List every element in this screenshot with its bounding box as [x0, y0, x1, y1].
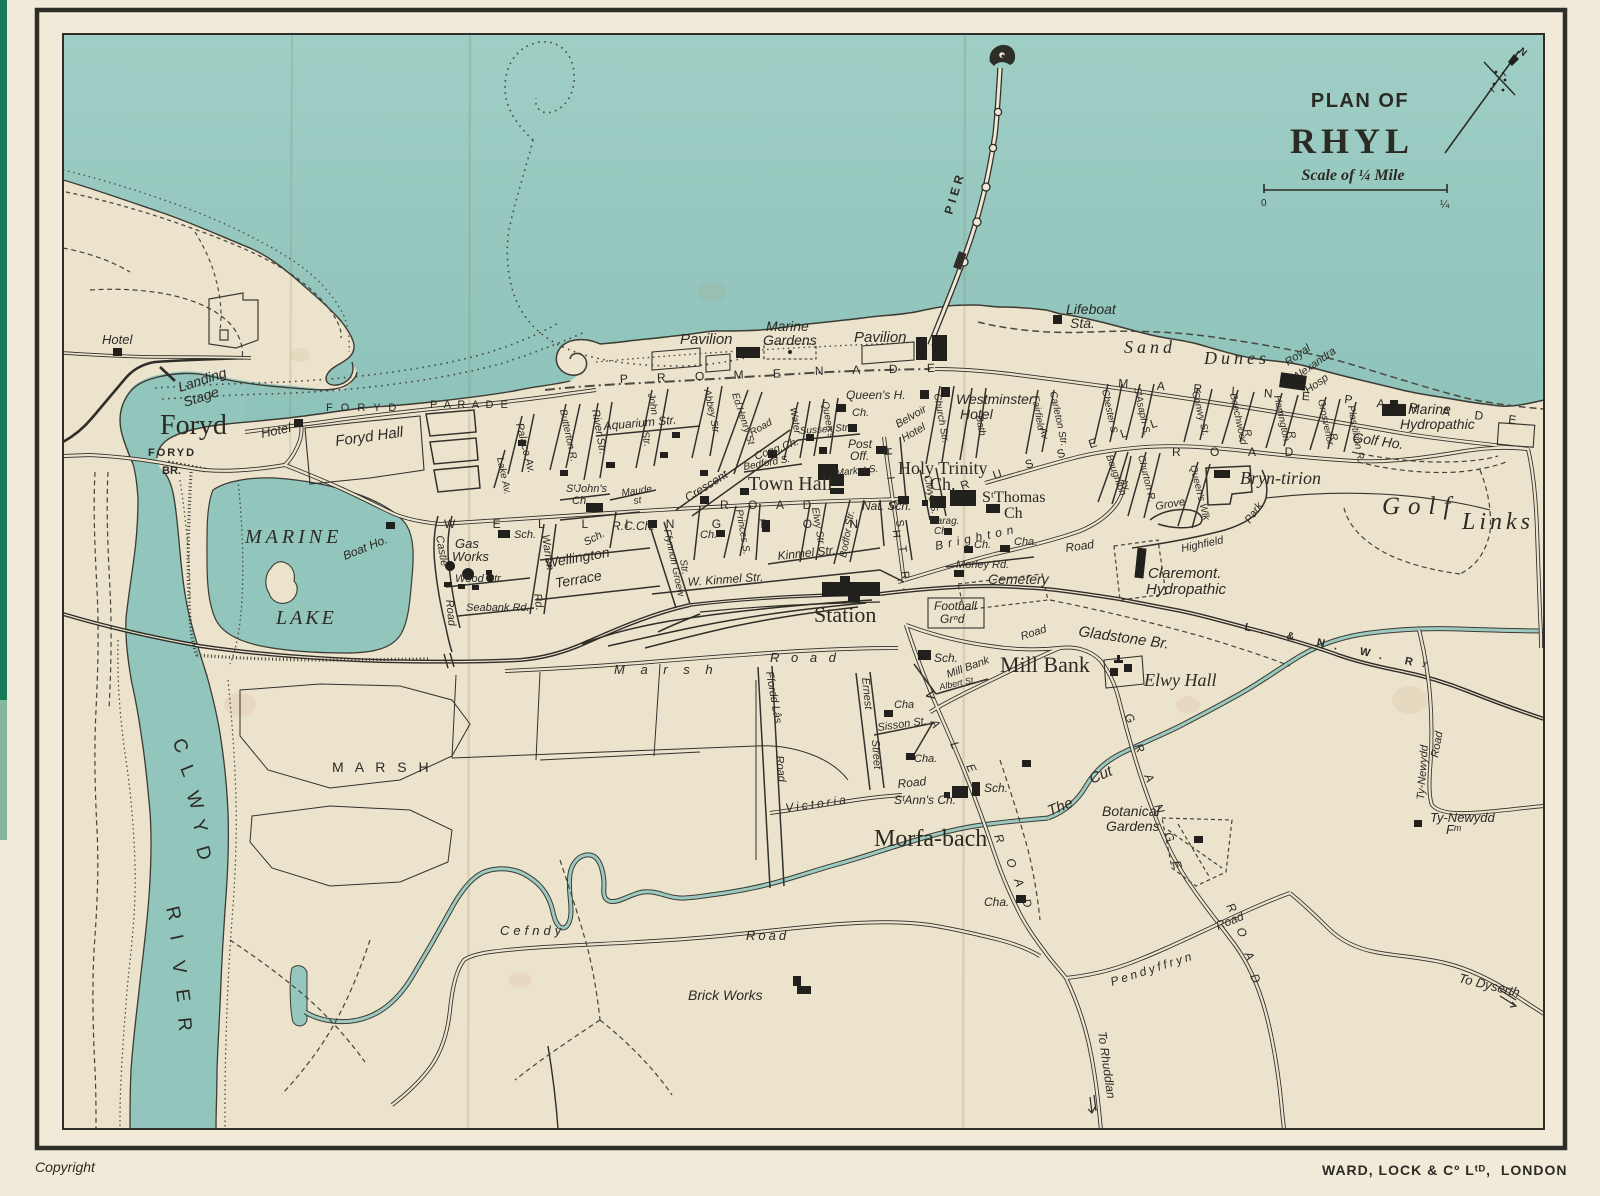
svg-text:Seabank Rd.: Seabank Rd. [466, 602, 530, 614]
svg-text:¼: ¼ [1440, 199, 1450, 211]
svg-text:Town Hall: Town Hall [748, 473, 833, 495]
svg-text:Football: Football [934, 599, 977, 613]
svg-text:R: R [173, 1016, 195, 1032]
svg-text:Westminster: Westminster [956, 391, 1035, 407]
svg-text:Scale of ¼ Mile: Scale of ¼ Mile [1301, 167, 1404, 184]
svg-text:Off.: Off. [850, 449, 869, 463]
svg-text:Marine: Marine [1408, 401, 1451, 417]
svg-text:Pavilion: Pavilion [680, 331, 733, 348]
svg-text:M a r s h: M a r s h [614, 662, 719, 677]
svg-text:Pavilion: Pavilion [854, 329, 907, 346]
svg-text:BR.: BR. [162, 465, 181, 477]
svg-text:0: 0 [1261, 198, 1267, 209]
svg-text:Gardens: Gardens [763, 332, 817, 348]
svg-text:Morley Rd.: Morley Rd. [956, 559, 1009, 571]
svg-text:R o a d: R o a d [770, 650, 840, 665]
svg-text:Sch.: Sch. [934, 651, 958, 665]
svg-text:Foryd: Foryd [160, 410, 227, 441]
svg-text:Cha.: Cha. [1014, 536, 1037, 548]
svg-text:Gardens: Gardens [1106, 818, 1160, 834]
svg-text:Cha.: Cha. [914, 753, 937, 765]
svg-text:Ch.: Ch. [974, 539, 991, 551]
svg-text:SᵗAnn's Ch.: SᵗAnn's Ch. [894, 793, 956, 807]
svg-text:Wood Str.: Wood Str. [455, 573, 504, 585]
svg-text:Queen's H.: Queen's H. [846, 388, 906, 402]
svg-text:PLAN OF: PLAN OF [1311, 90, 1409, 112]
svg-text:SᵗJohn's: SᵗJohn's [566, 483, 607, 495]
svg-text:Street: Street [869, 739, 883, 770]
svg-text:Grⁿd: Grⁿd [940, 612, 965, 626]
svg-text:Sand: Sand [1124, 337, 1176, 357]
svg-text:Ty-Newydd: Ty-Newydd [1430, 810, 1496, 825]
svg-text:P A R A D E: P A R A D E [430, 399, 510, 411]
svg-text:WARD, LOCK & Cº Lᵗᴰ, LONDON: WARD, LOCK & Cº Lᵗᴰ, LONDON [1322, 1162, 1568, 1178]
svg-text:Elwy Hall: Elwy Hall [1143, 670, 1217, 690]
svg-text:Dunes: Dunes [1203, 348, 1270, 368]
svg-text:W E L L I N G T O N: W E L L I N G T O N [444, 517, 875, 531]
svg-text:Ch.: Ch. [852, 407, 869, 419]
svg-text:Golf: Golf [1382, 493, 1458, 520]
svg-text:RHYL: RHYL [1290, 121, 1414, 161]
svg-text:Nat. Sch.: Nat. Sch. [862, 499, 911, 513]
svg-text:Road: Road [746, 928, 789, 943]
svg-text:Ch.: Ch. [934, 526, 950, 537]
svg-text:R O A D: R O A D [1172, 445, 1306, 459]
svg-text:Rd.: Rd. [531, 593, 545, 612]
svg-text:Copyright: Copyright [35, 1159, 96, 1175]
svg-text:Sta.: Sta. [1070, 315, 1095, 331]
svg-text:SᵗThomas: SᵗThomas [982, 489, 1046, 506]
svg-text:MARINE: MARINE [244, 526, 342, 548]
svg-text:Links: Links [1461, 509, 1534, 535]
svg-text:F O R Y D: F O R Y D [326, 402, 399, 414]
svg-text:R.C.Ch.: R.C.Ch. [612, 519, 655, 533]
svg-text:Morfa-bach: Morfa-bach [874, 826, 987, 852]
svg-text:Bryn-tirion: Bryn-tirion [1240, 468, 1321, 488]
svg-text:Ch.: Ch. [572, 495, 589, 507]
svg-text:Ch: Ch [1004, 505, 1023, 522]
svg-text:Station: Station [814, 602, 876, 627]
svg-text:Cefndy: Cefndy [500, 923, 565, 938]
svg-text:Mill Bank: Mill Bank [1000, 652, 1090, 677]
svg-text:Cha.: Cha. [984, 895, 1009, 909]
svg-text:Cha: Cha [894, 699, 914, 711]
svg-text:Hydropathic: Hydropathic [1400, 416, 1475, 432]
svg-text:FORYD: FORYD [148, 447, 196, 459]
svg-text:Botanical: Botanical [1102, 803, 1160, 819]
svg-text:Hotel: Hotel [960, 406, 994, 422]
svg-text:LAKE: LAKE [275, 607, 337, 629]
svg-text:Works: Works [452, 549, 489, 564]
svg-text:Brick Works: Brick Works [688, 987, 763, 1003]
svg-text:M A R S H: M A R S H [332, 759, 433, 775]
svg-text:Sch.: Sch. [514, 529, 536, 541]
svg-text:Cemetery: Cemetery [988, 571, 1050, 587]
svg-text:Hydropathic: Hydropathic [1146, 581, 1227, 598]
svg-text:Fᵐ: Fᵐ [1446, 822, 1461, 837]
svg-text:Ch.: Ch. [700, 529, 717, 541]
svg-text:Cłaremont.: Cłaremont. [1148, 565, 1221, 582]
svg-text:Sch.: Sch. [984, 781, 1008, 795]
svg-text:Hotel: Hotel [102, 332, 133, 347]
